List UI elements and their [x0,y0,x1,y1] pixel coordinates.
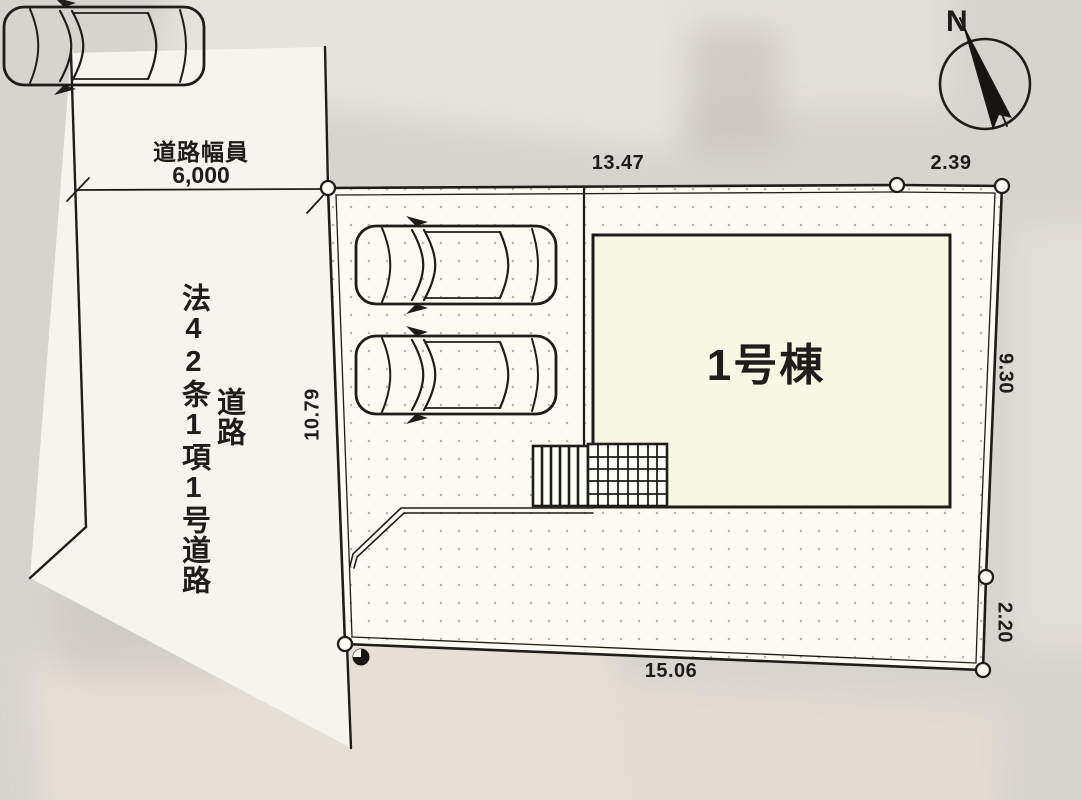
car-icon [356,216,556,314]
building-label: 1号棟 [666,343,866,389]
car-icon [356,326,556,424]
dimension-right-lower: 2.20 [994,583,1015,663]
benchmark-point-icon [353,649,370,666]
entrance-porch-grid-icon [588,444,667,506]
road-width-caption: 道路幅員 [141,140,261,164]
site-plan-diagram: N 道路幅員 6,000 法42条1項1号道路 道路 13.47 2.39 9.… [0,0,1082,800]
plan-linework [0,0,1082,800]
dimension-right-upper: 9.30 [995,334,1016,414]
dimension-top-right: 2.39 [911,153,991,174]
dimension-left: 10.79 [303,375,324,455]
road-width-value: 6,000 [141,163,261,187]
entrance-steps-icon [533,446,588,506]
dimension-top: 13.47 [570,153,666,174]
dimension-bottom: 15.06 [621,661,721,682]
north-label: N [946,6,968,38]
road-name-label: 道路 [213,387,243,467]
road-classification-label: 法42条1項1号道路 [178,283,208,583]
approach-path-line [350,508,593,568]
